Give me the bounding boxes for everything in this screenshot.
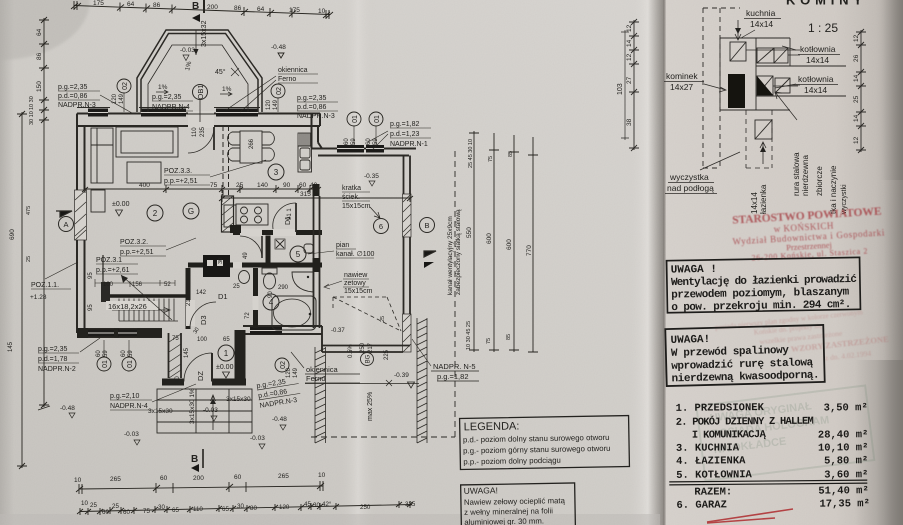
svg-text:15x15cm: 15x15cm bbox=[344, 288, 373, 295]
svg-text:10: 10 bbox=[318, 8, 326, 15]
svg-text:200: 200 bbox=[207, 4, 218, 11]
svg-text:-0.35: -0.35 bbox=[364, 173, 379, 180]
svg-text:ściek.: ściek. bbox=[342, 194, 360, 201]
svg-text:kominek: kominek bbox=[666, 71, 698, 81]
svg-text:tka i naczynie: tka i naczynie bbox=[829, 165, 838, 214]
svg-text:235: 235 bbox=[200, 126, 206, 137]
svg-text:86: 86 bbox=[234, 5, 242, 12]
svg-text:kanał. ∅100: kanał. ∅100 bbox=[336, 251, 375, 258]
svg-text:600: 600 bbox=[486, 233, 493, 244]
svg-text:p.p.- poziom dolny podciągu: p.p.- poziom dolny podciągu bbox=[463, 456, 561, 467]
svg-text:-0.03: -0.03 bbox=[180, 47, 195, 54]
svg-text:28,40 m²: 28,40 m² bbox=[818, 429, 869, 441]
svg-text:315: 315 bbox=[300, 191, 311, 198]
svg-text:60: 60 bbox=[160, 475, 168, 482]
svg-text:100: 100 bbox=[197, 337, 208, 343]
svg-text:NADPR.N-3: NADPR.N-3 bbox=[58, 102, 96, 109]
svg-text:25: 25 bbox=[853, 95, 860, 103]
svg-text:POZ.3.1: POZ.3.1 bbox=[96, 257, 122, 264]
svg-text:10: 10 bbox=[81, 500, 88, 507]
svg-text:3x15x30 1%: 3x15x30 1% bbox=[189, 388, 196, 424]
svg-text:p.p.=+2,51: p.p.=+2,51 bbox=[120, 249, 154, 256]
svg-text:64: 64 bbox=[36, 28, 43, 36]
svg-text:p.p.=+2,51: p.p.=+2,51 bbox=[164, 178, 198, 185]
svg-text:250: 250 bbox=[360, 504, 371, 511]
svg-text:p.g.=2,35: p.g.=2,35 bbox=[297, 95, 326, 102]
svg-text:POZ.3.2.: POZ.3.2. bbox=[120, 239, 148, 246]
svg-text:DZ: DZ bbox=[196, 371, 205, 381]
svg-text:10 30 45 25: 10 30 45 25 bbox=[466, 321, 472, 350]
svg-text:BG: BG bbox=[366, 354, 372, 363]
svg-text:5: 5 bbox=[296, 250, 301, 259]
svg-text:30: 30 bbox=[313, 502, 320, 509]
svg-text:600: 600 bbox=[506, 239, 513, 250]
svg-text:zbiorcze: zbiorcze bbox=[815, 166, 824, 196]
svg-text:12: 12 bbox=[626, 53, 633, 61]
svg-text:200: 200 bbox=[193, 475, 204, 482]
svg-text:3x15x30: 3x15x30 bbox=[148, 408, 173, 415]
svg-text:149: 149 bbox=[293, 367, 299, 378]
svg-text:kotłownia: kotłownia bbox=[800, 44, 836, 54]
svg-text:75: 75 bbox=[143, 508, 150, 515]
svg-text:NADPR.N-4: NADPR.N-4 bbox=[110, 403, 148, 410]
svg-text:86: 86 bbox=[153, 2, 161, 9]
svg-text:175: 175 bbox=[289, 7, 300, 14]
svg-text:kratka: kratka bbox=[342, 185, 361, 192]
svg-text:wyczystka: wyczystka bbox=[669, 172, 709, 182]
svg-text:95: 95 bbox=[88, 272, 94, 279]
svg-text:64: 64 bbox=[257, 6, 265, 13]
svg-text:290: 290 bbox=[278, 285, 289, 291]
svg-text:95: 95 bbox=[88, 304, 94, 311]
svg-text:p.g.=2,35: p.g.=2,35 bbox=[58, 84, 87, 91]
svg-text:02: 02 bbox=[122, 82, 129, 90]
svg-text:75: 75 bbox=[172, 336, 179, 342]
svg-text:p.g.=2,10: p.g.=2,10 bbox=[110, 393, 139, 400]
svg-text:14x27: 14x27 bbox=[670, 82, 693, 92]
svg-text:A: A bbox=[63, 220, 68, 229]
svg-text:Ferno: Ferno bbox=[306, 374, 326, 383]
svg-text:266: 266 bbox=[249, 138, 255, 149]
svg-text:12: 12 bbox=[853, 34, 860, 42]
svg-text:2: 2 bbox=[153, 209, 158, 218]
svg-text:25 45 30 10: 25 45 30 10 bbox=[468, 139, 474, 168]
svg-text:65: 65 bbox=[223, 337, 230, 343]
svg-text:02: 02 bbox=[276, 87, 283, 95]
svg-text:5,80 m²: 5,80 m² bbox=[824, 455, 868, 467]
svg-text:kuchnia: kuchnia bbox=[746, 8, 776, 18]
svg-text:max 25%: max 25% bbox=[367, 392, 374, 421]
svg-text:OB1: OB1 bbox=[196, 84, 205, 99]
svg-text:6: 6 bbox=[379, 222, 383, 231]
svg-text:25: 25 bbox=[233, 284, 240, 290]
svg-text:38: 38 bbox=[626, 118, 633, 126]
svg-text:2. POKÓJ DZIENNY Z HALLEM: 2. POKÓJ DZIENNY Z HALLEM bbox=[676, 414, 814, 429]
svg-text:01: 01 bbox=[127, 360, 134, 368]
svg-text:I KOMUNIKACJĄ: I KOMUNIKACJĄ bbox=[692, 429, 767, 442]
svg-text:120: 120 bbox=[279, 504, 290, 511]
svg-text:60: 60 bbox=[366, 138, 372, 145]
svg-text:G: G bbox=[188, 207, 194, 216]
svg-text:1%: 1% bbox=[158, 84, 168, 91]
svg-text:D1: D1 bbox=[218, 292, 228, 301]
svg-text:p.g.=2,35: p.g.=2,35 bbox=[38, 346, 67, 353]
svg-text:UWAGA!: UWAGA! bbox=[670, 334, 710, 347]
svg-text:p.g.=2,35: p.g.=2,35 bbox=[152, 94, 181, 101]
svg-text:400: 400 bbox=[139, 182, 150, 189]
svg-text:550: 550 bbox=[466, 227, 473, 238]
svg-text:40: 40 bbox=[175, 376, 181, 383]
svg-text:-0.48: -0.48 bbox=[271, 44, 286, 51]
svg-text:NADPR.N-3: NADPR.N-3 bbox=[297, 113, 335, 120]
svg-text:1. PRZEDSIONEK: 1. PRZEDSIONEK bbox=[676, 402, 765, 415]
svg-text:1 : 25: 1 : 25 bbox=[808, 21, 838, 35]
svg-text:-0.03: -0.03 bbox=[124, 431, 139, 438]
svg-text:Nawiew zełowy ocieplić matą: Nawiew zełowy ocieplić matą bbox=[464, 496, 566, 507]
svg-text:65: 65 bbox=[222, 506, 229, 513]
svg-text:D3: D3 bbox=[199, 315, 208, 325]
svg-text:120: 120 bbox=[286, 367, 292, 378]
svg-text:30: 30 bbox=[237, 503, 244, 510]
svg-text:02: 02 bbox=[280, 361, 287, 369]
svg-text:łazienka: łazienka bbox=[759, 184, 768, 214]
svg-text:51,40 m²: 51,40 m² bbox=[818, 485, 869, 497]
svg-text:POZ.1.1.: POZ.1.1. bbox=[31, 282, 59, 289]
svg-text:142: 142 bbox=[196, 290, 207, 296]
svg-text:-0.48: -0.48 bbox=[60, 405, 75, 412]
svg-text:14x14: 14x14 bbox=[806, 55, 829, 65]
svg-text:NADPR. N-5: NADPR. N-5 bbox=[433, 362, 476, 371]
svg-text:10: 10 bbox=[318, 472, 326, 479]
svg-text:NADPR.N-1: NADPR.N-1 bbox=[390, 141, 428, 148]
svg-text:01: 01 bbox=[352, 115, 359, 123]
svg-text:z wełny mineralnej na folii: z wełny mineralnej na folii bbox=[464, 506, 553, 517]
svg-text:49: 49 bbox=[243, 252, 249, 259]
svg-text:140: 140 bbox=[257, 182, 268, 189]
svg-text:p.g.=1,82: p.g.=1,82 bbox=[437, 372, 469, 381]
svg-text:175: 175 bbox=[93, 0, 104, 7]
svg-text:72: 72 bbox=[245, 312, 251, 319]
svg-text:25: 25 bbox=[380, 316, 386, 322]
svg-text:265: 265 bbox=[278, 473, 289, 480]
svg-text:UWAGA!: UWAGA! bbox=[464, 485, 498, 496]
svg-text:p.d.=1,78: p.d.=1,78 bbox=[38, 356, 67, 363]
svg-text:12: 12 bbox=[853, 136, 860, 144]
svg-text:120: 120 bbox=[112, 93, 118, 104]
svg-text:30: 30 bbox=[158, 504, 165, 511]
svg-text:zetowy: zetowy bbox=[344, 280, 366, 287]
svg-text:rura stalowa: rura stalowa bbox=[792, 152, 801, 196]
svg-text:90: 90 bbox=[283, 182, 291, 189]
svg-text:265: 265 bbox=[110, 476, 121, 483]
svg-text:1: 1 bbox=[224, 349, 229, 358]
svg-text:3,50 m²: 3,50 m² bbox=[824, 402, 868, 414]
svg-text:4: 4 bbox=[269, 298, 274, 307]
svg-text:145: 145 bbox=[8, 341, 14, 352]
svg-text:75: 75 bbox=[486, 338, 492, 344]
svg-text:110: 110 bbox=[192, 127, 198, 137]
svg-text:60: 60 bbox=[344, 138, 350, 145]
svg-text:14x14: 14x14 bbox=[750, 192, 759, 214]
svg-text:6. GARAZ: 6. GARAZ bbox=[676, 499, 727, 511]
svg-text:26: 26 bbox=[853, 54, 860, 62]
svg-text:3x15x32: 3x15x32 bbox=[201, 20, 208, 47]
svg-text:B: B bbox=[424, 221, 429, 230]
svg-text:475: 475 bbox=[26, 206, 32, 215]
svg-text:60: 60 bbox=[123, 509, 130, 516]
svg-text:30: 30 bbox=[218, 258, 224, 264]
svg-text:30 10: 30 10 bbox=[29, 111, 35, 125]
svg-text:90: 90 bbox=[268, 291, 274, 298]
svg-text:16x18,2x26: 16x18,2x26 bbox=[108, 302, 147, 311]
svg-text:10,10 m²: 10,10 m² bbox=[818, 442, 869, 454]
svg-text:75: 75 bbox=[488, 156, 494, 162]
svg-text:64: 64 bbox=[127, 1, 135, 8]
svg-text:3x15x30: 3x15x30 bbox=[226, 396, 251, 403]
svg-text:12: 12 bbox=[626, 24, 633, 32]
svg-text:5. KOTŁOWNIA: 5. KOTŁOWNIA bbox=[676, 469, 752, 482]
svg-text:250: 250 bbox=[360, 342, 366, 353]
svg-text:+1.28: +1.28 bbox=[30, 294, 47, 301]
svg-text:kanał wentylacyjny 25x9cm: kanał wentylacyjny 25x9cm bbox=[447, 216, 454, 295]
svg-text:p.p.=+2,61: p.p.=+2,61 bbox=[96, 267, 130, 274]
svg-text:145: 145 bbox=[184, 347, 190, 358]
svg-text:14: 14 bbox=[626, 39, 633, 47]
svg-text:690: 690 bbox=[9, 229, 16, 240]
svg-text:91 1: 91 1 bbox=[287, 208, 293, 220]
svg-text:UWAGA !: UWAGA ! bbox=[671, 264, 717, 277]
svg-text:-0.03: -0.03 bbox=[203, 407, 218, 414]
svg-text:01: 01 bbox=[102, 360, 109, 368]
svg-text:POZ.3.3.: POZ.3.3. bbox=[164, 168, 192, 175]
svg-text:103: 103 bbox=[617, 83, 624, 95]
svg-text:14: 14 bbox=[853, 114, 860, 122]
svg-text:25: 25 bbox=[90, 502, 97, 509]
svg-text:15x15cm: 15x15cm bbox=[342, 203, 371, 210]
svg-text:okiennica: okiennica bbox=[278, 67, 308, 74]
svg-text:1%: 1% bbox=[222, 86, 232, 93]
svg-text:p.d.=0,86: p.d.=0,86 bbox=[297, 104, 326, 111]
svg-text:60: 60 bbox=[299, 182, 307, 189]
svg-text:zabezpieczony siatką stalową: zabezpieczony siatką stalową bbox=[455, 209, 462, 295]
svg-text:110: 110 bbox=[193, 506, 203, 513]
svg-text:nad podłogą: nad podłogą bbox=[667, 183, 714, 193]
svg-text:Ferno: Ferno bbox=[278, 76, 296, 83]
svg-text:225: 225 bbox=[384, 349, 390, 360]
svg-text:85: 85 bbox=[506, 334, 512, 340]
svg-text:p.d.=1,23: p.d.=1,23 bbox=[390, 131, 419, 138]
svg-text:25: 25 bbox=[236, 182, 244, 189]
svg-text:RAZEM:: RAZEM: bbox=[694, 486, 732, 498]
svg-text:14x14: 14x14 bbox=[804, 85, 827, 95]
svg-text:25: 25 bbox=[26, 256, 32, 262]
svg-text:B: B bbox=[192, 1, 199, 12]
svg-text:okiennica: okiennica bbox=[306, 365, 339, 374]
svg-text:kotłownia: kotłownia bbox=[798, 74, 834, 84]
svg-text:p.d.=0,86: p.d.=0,86 bbox=[58, 93, 87, 100]
svg-text:60: 60 bbox=[102, 509, 109, 516]
svg-text:±0.00: ±0.00 bbox=[112, 201, 130, 208]
svg-text:nawiew: nawiew bbox=[344, 272, 368, 279]
svg-text:65: 65 bbox=[172, 507, 179, 514]
svg-text:215: 215 bbox=[186, 295, 192, 306]
svg-text:-0.37: -0.37 bbox=[331, 328, 345, 334]
svg-text:60: 60 bbox=[96, 350, 102, 357]
svg-text:nierdzewna: nierdzewna bbox=[801, 155, 810, 196]
svg-text:0.5%: 0.5% bbox=[348, 344, 354, 358]
svg-text:3. KUCHNIA: 3. KUCHNIA bbox=[676, 442, 740, 455]
svg-text:NADPR.N-2: NADPR.N-2 bbox=[38, 366, 76, 373]
svg-text:14x14: 14x14 bbox=[750, 19, 773, 29]
svg-text:14: 14 bbox=[853, 74, 860, 82]
svg-text:770: 770 bbox=[526, 245, 533, 256]
svg-text:86: 86 bbox=[36, 52, 43, 60]
svg-text:LEGENDA:: LEGENDA: bbox=[464, 420, 520, 433]
svg-text:±0.00: ±0.00 bbox=[216, 364, 234, 371]
svg-text:45°: 45° bbox=[215, 68, 226, 76]
svg-text:B: B bbox=[191, 454, 198, 465]
svg-text:42°: 42° bbox=[322, 501, 332, 508]
svg-text:10 30: 10 30 bbox=[29, 96, 35, 110]
svg-text:17,35 m²: 17,35 m² bbox=[819, 498, 870, 510]
svg-text:120: 120 bbox=[266, 99, 272, 110]
svg-text:85: 85 bbox=[508, 151, 514, 157]
svg-text:27: 27 bbox=[626, 76, 633, 84]
svg-text:80: 80 bbox=[250, 505, 257, 512]
svg-text:25: 25 bbox=[112, 503, 119, 510]
svg-text:60: 60 bbox=[121, 350, 127, 357]
svg-text:p.g.=1,82: p.g.=1,82 bbox=[390, 121, 419, 128]
svg-text:75: 75 bbox=[210, 182, 218, 189]
svg-text:NADPR.N-4: NADPR.N-4 bbox=[152, 104, 190, 111]
svg-text:40: 40 bbox=[310, 182, 318, 189]
svg-text:01: 01 bbox=[374, 115, 381, 123]
svg-text:-0.03: -0.03 bbox=[250, 435, 265, 442]
svg-text:pian: pian bbox=[336, 242, 349, 249]
svg-text:60: 60 bbox=[234, 474, 242, 481]
svg-text:3: 3 bbox=[274, 168, 279, 177]
svg-text:10: 10 bbox=[74, 477, 82, 484]
svg-text:150: 150 bbox=[36, 81, 43, 92]
svg-text:aluminiowej gr. 30 mm.: aluminiowej gr. 30 mm. bbox=[464, 516, 544, 525]
svg-text:-0.39: -0.39 bbox=[394, 372, 409, 379]
svg-text:4. ŁAZIENKA: 4. ŁAZIENKA bbox=[676, 455, 746, 468]
svg-text:217: 217 bbox=[368, 342, 374, 353]
svg-text:-0.48: -0.48 bbox=[272, 416, 287, 423]
